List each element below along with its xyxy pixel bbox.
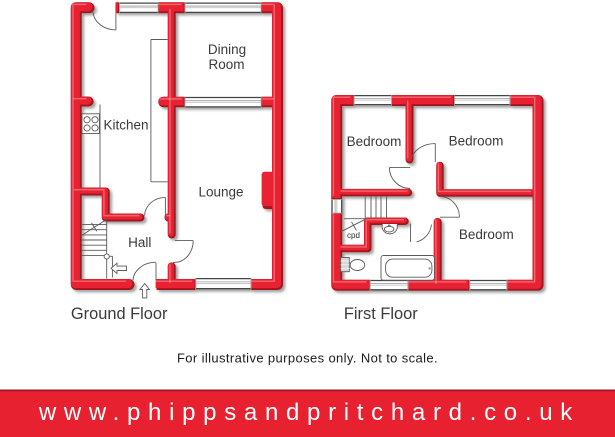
- svg-text:Ground Floor: Ground Floor: [71, 305, 168, 323]
- svg-text:www.phippsandpritchard.co.uk: www.phippsandpritchard.co.uk: [38, 399, 580, 426]
- svg-text:Bedroom: Bedroom: [449, 134, 504, 149]
- svg-text:First Floor: First Floor: [344, 305, 418, 323]
- svg-text:Lounge: Lounge: [198, 184, 243, 199]
- svg-text:cpd: cpd: [347, 231, 360, 240]
- svg-text:Bedroom: Bedroom: [459, 227, 514, 242]
- svg-text:Bedroom: Bedroom: [347, 134, 402, 149]
- svg-text:Dining: Dining: [208, 42, 246, 57]
- svg-text:Room: Room: [208, 57, 244, 72]
- svg-text:Hall: Hall: [128, 235, 151, 250]
- svg-text:For illustrative purposes only: For illustrative purposes only. Not to s…: [177, 351, 438, 366]
- svg-text:Kitchen: Kitchen: [103, 117, 148, 132]
